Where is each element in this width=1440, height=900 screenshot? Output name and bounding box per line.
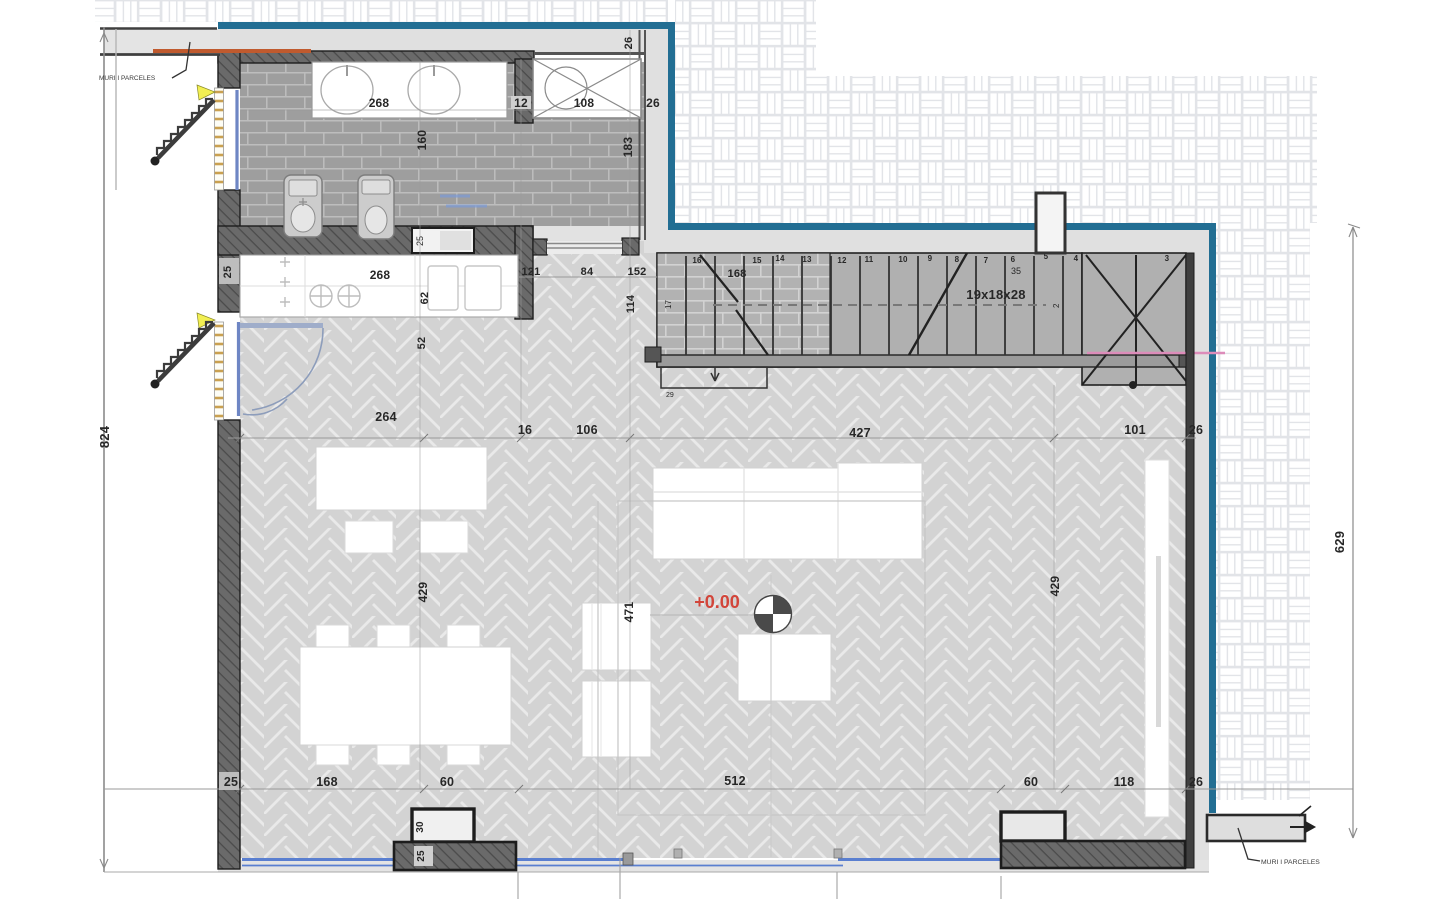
svg-text:512: 512 (724, 774, 745, 788)
svg-text:264: 264 (375, 410, 396, 424)
svg-text:26: 26 (1189, 423, 1203, 437)
svg-text:12: 12 (514, 96, 528, 110)
svg-text:8: 8 (955, 255, 960, 264)
svg-text:25: 25 (416, 850, 427, 862)
svg-text:84: 84 (581, 266, 594, 278)
svg-text:429: 429 (1048, 576, 1062, 597)
svg-text:10: 10 (898, 255, 908, 264)
svg-text:26: 26 (1189, 775, 1203, 789)
svg-text:26: 26 (646, 96, 660, 110)
svg-text:121: 121 (522, 266, 541, 278)
svg-text:101: 101 (1124, 423, 1145, 437)
svg-text:118: 118 (1114, 775, 1135, 789)
svg-text:15: 15 (752, 256, 762, 265)
svg-text:168: 168 (316, 775, 337, 789)
svg-text:2: 2 (1052, 303, 1061, 308)
svg-text:14: 14 (775, 254, 785, 263)
svg-text:25: 25 (222, 266, 234, 279)
svg-text:4: 4 (1074, 254, 1079, 263)
svg-text:9: 9 (928, 254, 933, 263)
svg-text:6: 6 (1011, 255, 1016, 264)
svg-text:16: 16 (692, 256, 702, 265)
svg-text:183: 183 (621, 137, 635, 158)
svg-text:60: 60 (1024, 775, 1038, 789)
svg-text:429: 429 (416, 582, 430, 603)
svg-text:160: 160 (415, 130, 429, 151)
svg-text:11: 11 (865, 255, 874, 264)
svg-text:30: 30 (415, 821, 426, 833)
svg-text:26: 26 (623, 37, 635, 50)
svg-text:268: 268 (370, 268, 391, 282)
svg-text:25: 25 (224, 775, 238, 789)
svg-text:168: 168 (728, 268, 747, 280)
svg-text:52: 52 (416, 337, 428, 350)
svg-text:152: 152 (628, 266, 647, 278)
svg-text:471: 471 (622, 602, 636, 623)
svg-text:MURI I PARCELES: MURI I PARCELES (1261, 859, 1320, 866)
svg-text:108: 108 (574, 96, 595, 110)
svg-text:29: 29 (666, 392, 674, 399)
svg-text:114: 114 (625, 294, 637, 313)
svg-text:60: 60 (440, 775, 454, 789)
svg-text:268: 268 (369, 96, 390, 110)
svg-text:106: 106 (576, 423, 597, 437)
svg-text:16: 16 (518, 423, 532, 437)
svg-text:12: 12 (837, 256, 847, 265)
svg-text:MURI I PARCELES: MURI I PARCELES (99, 75, 156, 82)
svg-text:7: 7 (984, 256, 989, 265)
svg-text:62: 62 (419, 292, 431, 305)
svg-text:629: 629 (1332, 531, 1347, 553)
svg-text:35: 35 (1011, 266, 1021, 276)
svg-text:19x18x28: 19x18x28 (966, 287, 1025, 302)
svg-text:427: 427 (849, 426, 870, 440)
svg-text:824: 824 (97, 425, 112, 448)
svg-text:3: 3 (1165, 254, 1170, 263)
svg-text:17: 17 (664, 300, 673, 309)
svg-text:+0.00: +0.00 (694, 592, 740, 612)
svg-text:13: 13 (802, 255, 812, 264)
